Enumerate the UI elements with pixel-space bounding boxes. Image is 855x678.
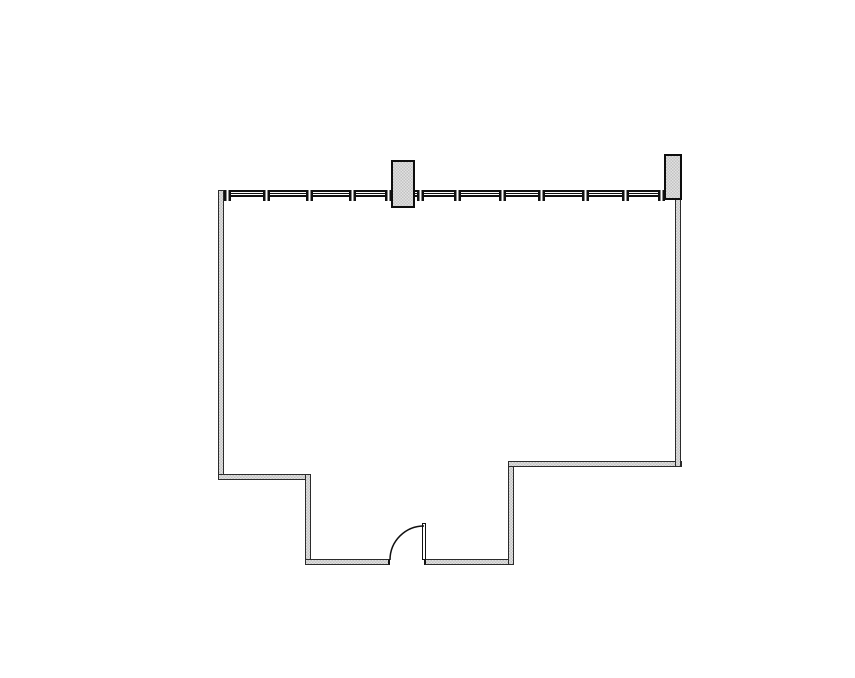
wall-bottom-right <box>424 559 514 565</box>
wall-bottom-left <box>305 559 390 565</box>
window-mullion-tick <box>582 190 589 201</box>
window-wall-glazing-line <box>222 193 666 194</box>
wall-right-step <box>508 461 514 565</box>
window-mullion-tick <box>622 190 629 201</box>
wall-left-step <box>305 474 311 565</box>
wall-lower-right <box>508 461 682 467</box>
window-mullion-tick <box>454 190 461 201</box>
window-mullion-tick <box>263 190 270 201</box>
window-mullion-tick <box>349 190 356 201</box>
door-leaf <box>422 523 426 560</box>
wall-left <box>218 190 224 480</box>
wall-lower-left <box>218 474 311 480</box>
window-mullion-tick <box>499 190 506 201</box>
floor-plan <box>0 0 855 678</box>
window-wall <box>222 190 666 197</box>
wall-right <box>675 198 681 467</box>
door-swing-arc <box>0 0 855 678</box>
column-center <box>391 160 415 208</box>
window-mullion-tick <box>538 190 545 201</box>
column-right <box>664 154 682 200</box>
window-mullion-tick <box>306 190 313 201</box>
window-mullion-tick <box>417 190 424 201</box>
window-mullion-tick <box>224 190 231 201</box>
